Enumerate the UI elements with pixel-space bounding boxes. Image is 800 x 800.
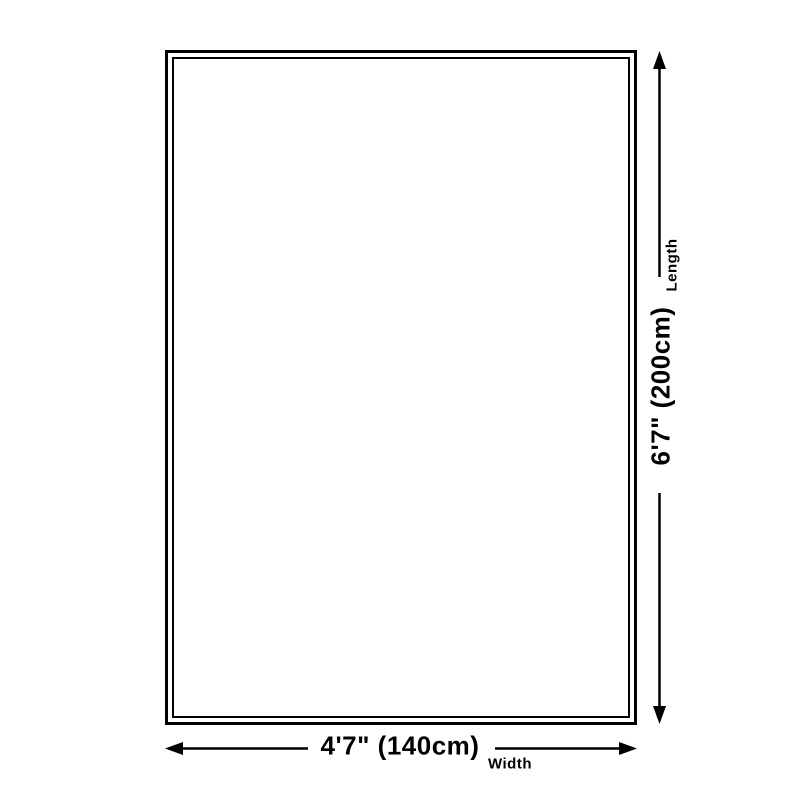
width-axis-label: Width <box>488 756 532 773</box>
rug-inner-border <box>172 57 630 718</box>
arrow-right-icon <box>619 742 637 755</box>
arrow-left-icon <box>165 742 183 755</box>
rug-size-diagram: 6'7" (200cm) Length 4'7" (140cm) Width <box>0 0 800 800</box>
length-axis-label: Length <box>664 239 681 292</box>
length-dimension-value: 6'7" (200cm) <box>646 307 677 466</box>
arrow-down-icon <box>653 706 666 724</box>
rug-outline <box>165 50 637 725</box>
width-dimension-value: 4'7" (140cm) <box>321 731 480 762</box>
arrow-up-icon <box>653 51 666 69</box>
